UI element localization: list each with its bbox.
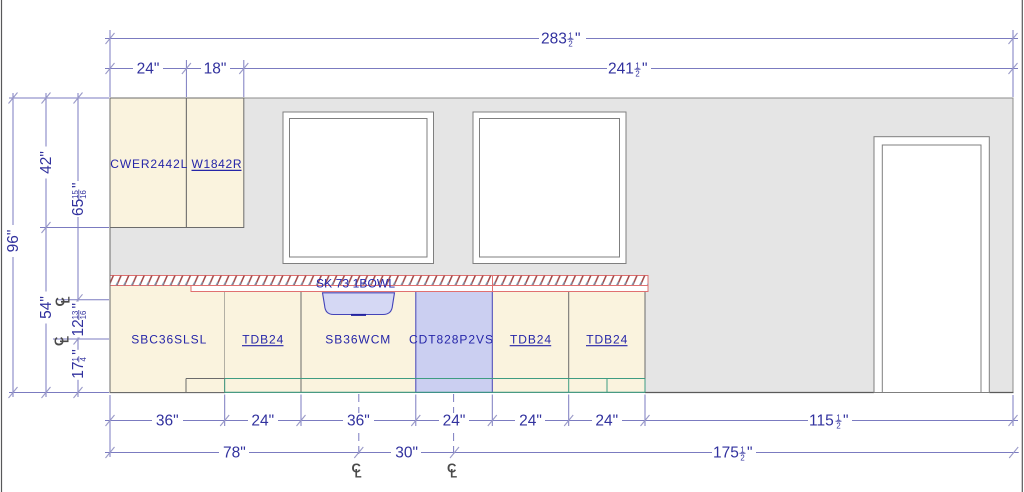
- svg-text:96": 96": [5, 230, 22, 253]
- svg-text:24": 24": [137, 61, 160, 78]
- svg-text:2: 2: [635, 69, 639, 78]
- svg-text:65: 65: [70, 199, 87, 216]
- svg-text:": ": [843, 413, 849, 430]
- svg-text:W1842R: W1842R: [192, 157, 242, 171]
- svg-text:24": 24": [443, 413, 466, 430]
- svg-text:2: 2: [740, 453, 744, 462]
- svg-text:": ": [70, 303, 87, 309]
- svg-text:241: 241: [608, 61, 634, 78]
- svg-text:30": 30": [395, 445, 418, 462]
- svg-text:SB36WCM: SB36WCM: [325, 332, 390, 346]
- svg-text:CWER2442L: CWER2442L: [110, 157, 187, 171]
- svg-text:TDB24: TDB24: [242, 332, 283, 346]
- svg-text:": ": [747, 445, 753, 462]
- svg-text:16: 16: [79, 190, 88, 199]
- svg-text:L: L: [60, 336, 72, 343]
- svg-text:24": 24": [595, 413, 618, 430]
- svg-text:": ": [70, 182, 87, 188]
- svg-text:42": 42": [38, 151, 55, 174]
- svg-text:SBC36SLSL: SBC36SLSL: [131, 332, 206, 346]
- svg-text:2: 2: [836, 421, 840, 430]
- svg-text:78": 78": [223, 445, 246, 462]
- svg-text:L: L: [450, 469, 457, 481]
- svg-text:CDT828P2VS: CDT828P2VS: [409, 332, 493, 346]
- svg-text:TDB24: TDB24: [510, 332, 551, 346]
- svg-text:SK 73 1BOWL: SK 73 1BOWL: [316, 277, 395, 291]
- svg-text:L: L: [355, 469, 362, 481]
- svg-text:L: L: [61, 296, 73, 303]
- svg-text:283: 283: [541, 31, 567, 48]
- svg-text:175: 175: [713, 445, 739, 462]
- svg-text:24": 24": [251, 413, 274, 430]
- svg-text:": ": [642, 61, 648, 78]
- svg-text:17: 17: [70, 362, 87, 379]
- svg-text:4: 4: [79, 356, 88, 361]
- svg-text:36": 36": [156, 413, 179, 430]
- svg-text:2: 2: [568, 39, 572, 48]
- svg-text:16: 16: [79, 311, 88, 320]
- svg-text:115: 115: [809, 413, 834, 430]
- svg-text:36": 36": [347, 413, 370, 430]
- svg-text:": ": [70, 349, 87, 355]
- svg-text:12: 12: [70, 319, 87, 336]
- svg-text:24": 24": [519, 413, 542, 430]
- svg-text:": ": [575, 31, 581, 48]
- svg-text:TDB24: TDB24: [586, 332, 627, 346]
- svg-text:18": 18": [204, 61, 227, 78]
